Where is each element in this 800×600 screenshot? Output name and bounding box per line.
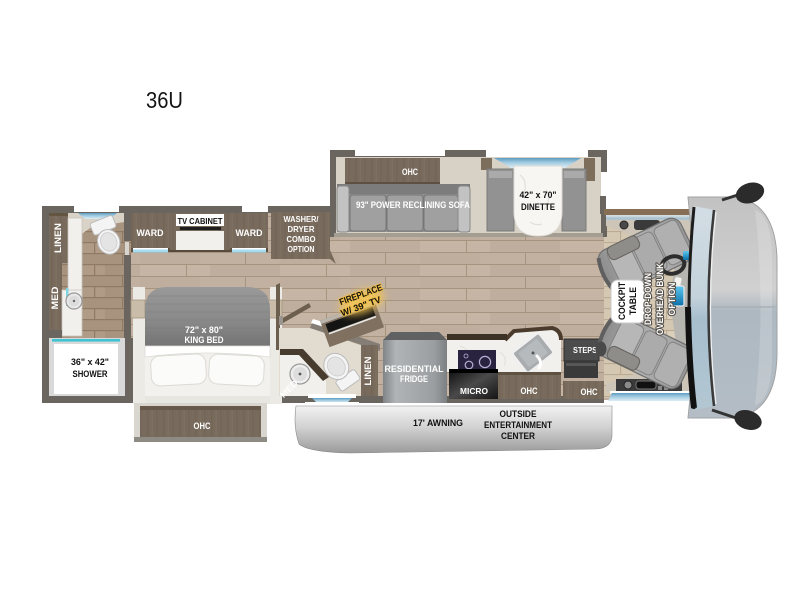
svg-text:WARD: WARD — [137, 228, 164, 238]
svg-text:WARD: WARD — [236, 228, 263, 238]
svg-text:93" POWER RECLINING SOFA: 93" POWER RECLINING SOFA — [356, 200, 471, 210]
svg-text:SHOWER: SHOWER — [73, 369, 108, 379]
svg-text:OHC: OHC — [521, 386, 538, 396]
svg-text:LINEN: LINEN — [363, 357, 373, 386]
svg-text:TV CABINET: TV CABINET — [178, 216, 224, 226]
svg-text:DRYER: DRYER — [288, 225, 315, 234]
svg-text:OPTION: OPTION — [667, 283, 677, 316]
svg-text:17' AWNING: 17' AWNING — [413, 418, 463, 429]
svg-text:WASHER/: WASHER/ — [284, 215, 320, 224]
svg-text:42" x 70": 42" x 70" — [520, 190, 557, 200]
svg-text:OHC: OHC — [402, 167, 418, 177]
svg-text:36U: 36U — [146, 87, 183, 113]
svg-text:COMBO: COMBO — [287, 235, 316, 244]
svg-text:36" x 42": 36" x 42" — [71, 357, 109, 367]
svg-text:OPTION: OPTION — [288, 245, 315, 254]
svg-text:MICRO: MICRO — [460, 386, 488, 396]
svg-text:LINEN: LINEN — [53, 223, 64, 253]
svg-text:CENTER: CENTER — [501, 431, 535, 442]
svg-text:RESIDENTIAL: RESIDENTIAL — [385, 364, 444, 374]
svg-text:FRIDGE: FRIDGE — [400, 374, 428, 384]
svg-text:OHC: OHC — [194, 421, 211, 431]
svg-text:72" x 80": 72" x 80" — [185, 325, 223, 335]
svg-text:OVERHEAD BUNK: OVERHEAD BUNK — [655, 263, 665, 335]
svg-text:DROP-DOWN: DROP-DOWN — [643, 273, 653, 325]
svg-text:TABLE: TABLE — [628, 287, 639, 315]
svg-text:OHC: OHC — [581, 387, 598, 397]
svg-text:OUTSIDE: OUTSIDE — [500, 409, 537, 420]
svg-text:DINETTE: DINETTE — [521, 202, 555, 212]
svg-text:STEPS: STEPS — [573, 345, 597, 355]
svg-text:KING BED: KING BED — [185, 335, 224, 345]
svg-text:MED: MED — [50, 286, 61, 309]
svg-text:COCKPIT: COCKPIT — [617, 282, 628, 320]
svg-text:ENTERTAINMENT: ENTERTAINMENT — [484, 420, 552, 431]
